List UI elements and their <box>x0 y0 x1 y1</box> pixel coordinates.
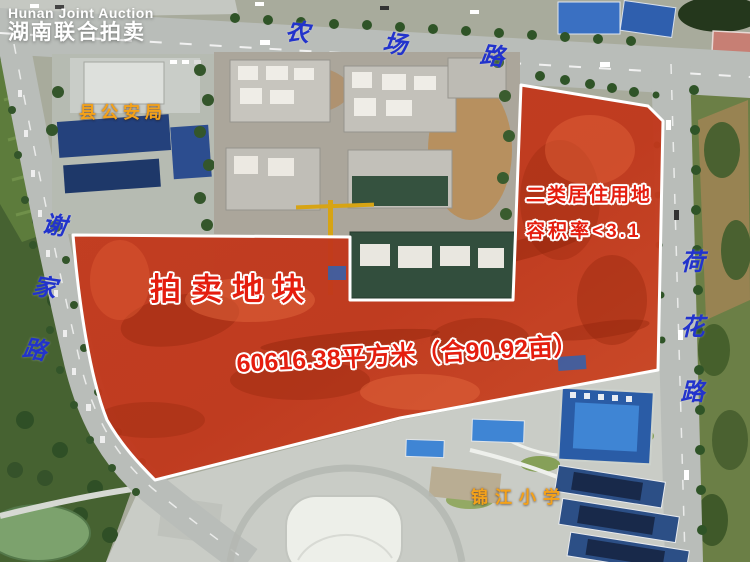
watermark: Hunan Joint Auction 湖南联合拍卖 <box>8 6 154 43</box>
landmark-police-station: 县公安局 <box>79 104 167 121</box>
watermark-brand-en: Hunan Joint Auction <box>8 6 154 20</box>
aerial-photo <box>0 0 750 562</box>
parcel-title: 拍卖地块 <box>150 274 314 305</box>
land-auction-aerial-map: Hunan Joint Auction 湖南联合拍卖 农场路 谢家路 荷花路 县… <box>0 0 750 562</box>
parcel-land-use: 二类居住用地 <box>526 186 652 205</box>
road-label-hehua: 荷花路 <box>677 249 701 444</box>
police-compound <box>46 54 215 234</box>
watermark-brand-zh: 湖南联合拍卖 <box>8 22 154 43</box>
parcel-plot-ratio: 容积率<3.1 <box>526 222 642 241</box>
landmark-primary-school: 锦江小学 <box>471 489 567 506</box>
